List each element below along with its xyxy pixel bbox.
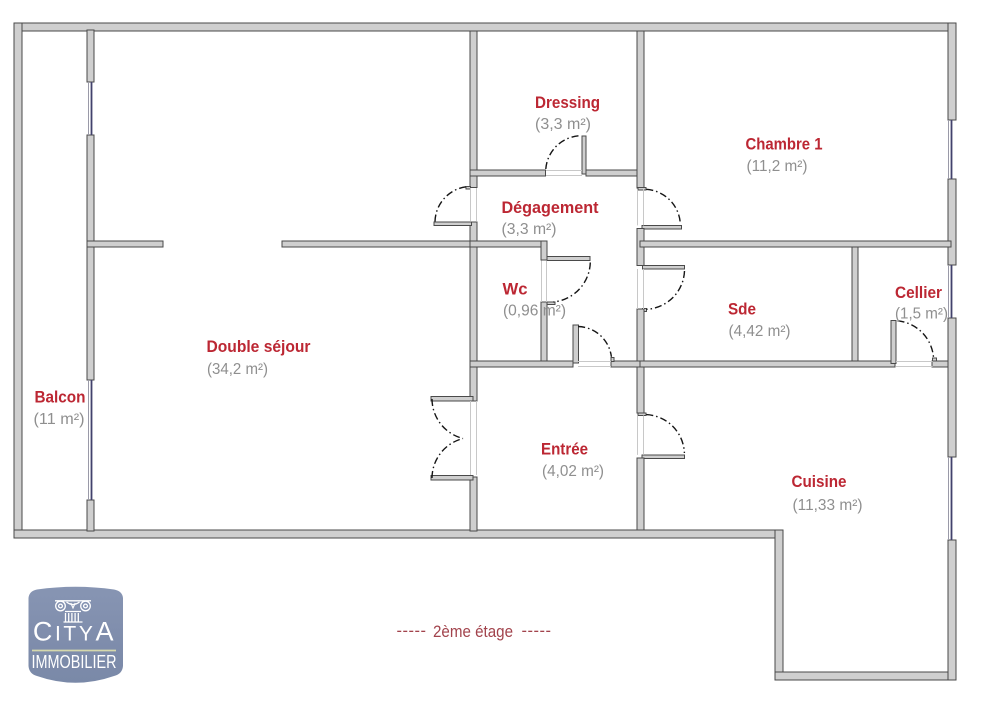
svg-text:(4,42 m²): (4,42 m²) [729, 323, 791, 340]
svg-text:Wc: Wc [503, 281, 528, 299]
svg-text:Cuisine: Cuisine [792, 473, 847, 491]
svg-text:(4,02 m²): (4,02 m²) [542, 463, 604, 480]
svg-text:Cellier: Cellier [895, 284, 943, 302]
svg-text:-----: ----- [522, 622, 552, 640]
svg-text:Chambre 1: Chambre 1 [746, 136, 823, 154]
svg-text:(3,3 m²): (3,3 m²) [535, 116, 591, 133]
svg-text:Sde: Sde [728, 301, 756, 319]
svg-text:IMMOBILIER: IMMOBILIER [32, 652, 117, 672]
svg-text:(1,5 m²): (1,5 m²) [895, 306, 948, 323]
svg-text:(0,96 m²): (0,96 m²) [503, 303, 566, 320]
svg-text:Dressing: Dressing [535, 94, 600, 112]
svg-text:Dégagement: Dégagement [502, 199, 599, 217]
svg-text:(34,2 m²): (34,2 m²) [207, 361, 268, 378]
svg-text:-----: ----- [397, 622, 427, 640]
svg-text:(11 m²): (11 m²) [34, 411, 85, 428]
svg-text:Balcon: Balcon [35, 389, 86, 407]
svg-text:(11,33 m²): (11,33 m²) [793, 497, 863, 514]
svg-text:Double séjour: Double séjour [207, 338, 312, 356]
svg-text:2ème étage: 2ème étage [433, 623, 513, 641]
svg-text:(11,2 m²): (11,2 m²) [747, 158, 808, 175]
svg-text:Entrée: Entrée [541, 441, 588, 459]
svg-text:(3,3 m²): (3,3 m²) [502, 221, 557, 238]
